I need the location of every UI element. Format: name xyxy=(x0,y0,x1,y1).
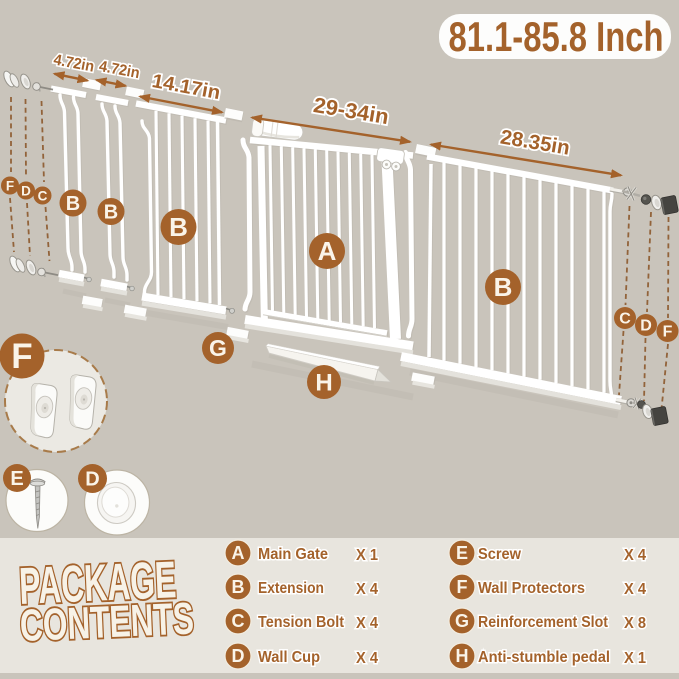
svg-text:X 4: X 4 xyxy=(356,615,378,632)
svg-text:Wall Cup: Wall Cup xyxy=(258,649,320,666)
svg-text:E: E xyxy=(456,543,468,563)
svg-text:CONTENTS: CONTENTS xyxy=(19,592,195,651)
svg-text:D: D xyxy=(232,646,245,666)
svg-text:F: F xyxy=(11,337,32,376)
svg-text:E: E xyxy=(10,468,23,490)
svg-text:B: B xyxy=(494,272,513,302)
svg-text:X 1: X 1 xyxy=(624,650,646,667)
svg-text:B: B xyxy=(66,193,80,215)
svg-text:B: B xyxy=(169,212,188,242)
svg-text:C: C xyxy=(38,189,48,204)
svg-text:X 8: X 8 xyxy=(624,615,646,632)
svg-text:F: F xyxy=(6,179,14,194)
svg-text:F: F xyxy=(663,324,673,341)
svg-text:D: D xyxy=(21,184,31,199)
svg-text:D: D xyxy=(85,469,99,491)
svg-text:Wall Protectors: Wall Protectors xyxy=(478,580,585,597)
svg-text:H: H xyxy=(456,646,469,666)
svg-text:Anti-stumble pedal: Anti-stumble pedal xyxy=(478,649,610,666)
svg-text:G: G xyxy=(455,611,469,631)
svg-text:C: C xyxy=(232,611,245,631)
svg-text:X 4: X 4 xyxy=(356,650,378,667)
svg-text:Main Gate: Main Gate xyxy=(258,546,328,563)
svg-text:F: F xyxy=(457,577,468,597)
svg-text:G: G xyxy=(209,335,227,361)
svg-text:A: A xyxy=(232,543,245,563)
svg-text:X 1: X 1 xyxy=(356,547,378,564)
svg-text:Reinforcement Slot: Reinforcement Slot xyxy=(478,614,609,631)
svg-text:A: A xyxy=(318,236,337,266)
svg-text:X 4: X 4 xyxy=(624,547,646,564)
svg-text:X 4: X 4 xyxy=(356,581,378,598)
svg-text:C: C xyxy=(619,311,631,328)
svg-text:Screw: Screw xyxy=(478,546,522,563)
svg-text:Tension Bolt: Tension Bolt xyxy=(258,614,345,631)
svg-text:B: B xyxy=(232,577,245,597)
svg-text:Extension: Extension xyxy=(258,580,324,597)
svg-text:81.1-85.8 Inch: 81.1-85.8 Inch xyxy=(449,13,664,60)
svg-text:X 4: X 4 xyxy=(624,581,646,598)
svg-text:H: H xyxy=(315,370,332,397)
svg-text:D: D xyxy=(640,318,652,335)
svg-text:B: B xyxy=(104,202,118,224)
